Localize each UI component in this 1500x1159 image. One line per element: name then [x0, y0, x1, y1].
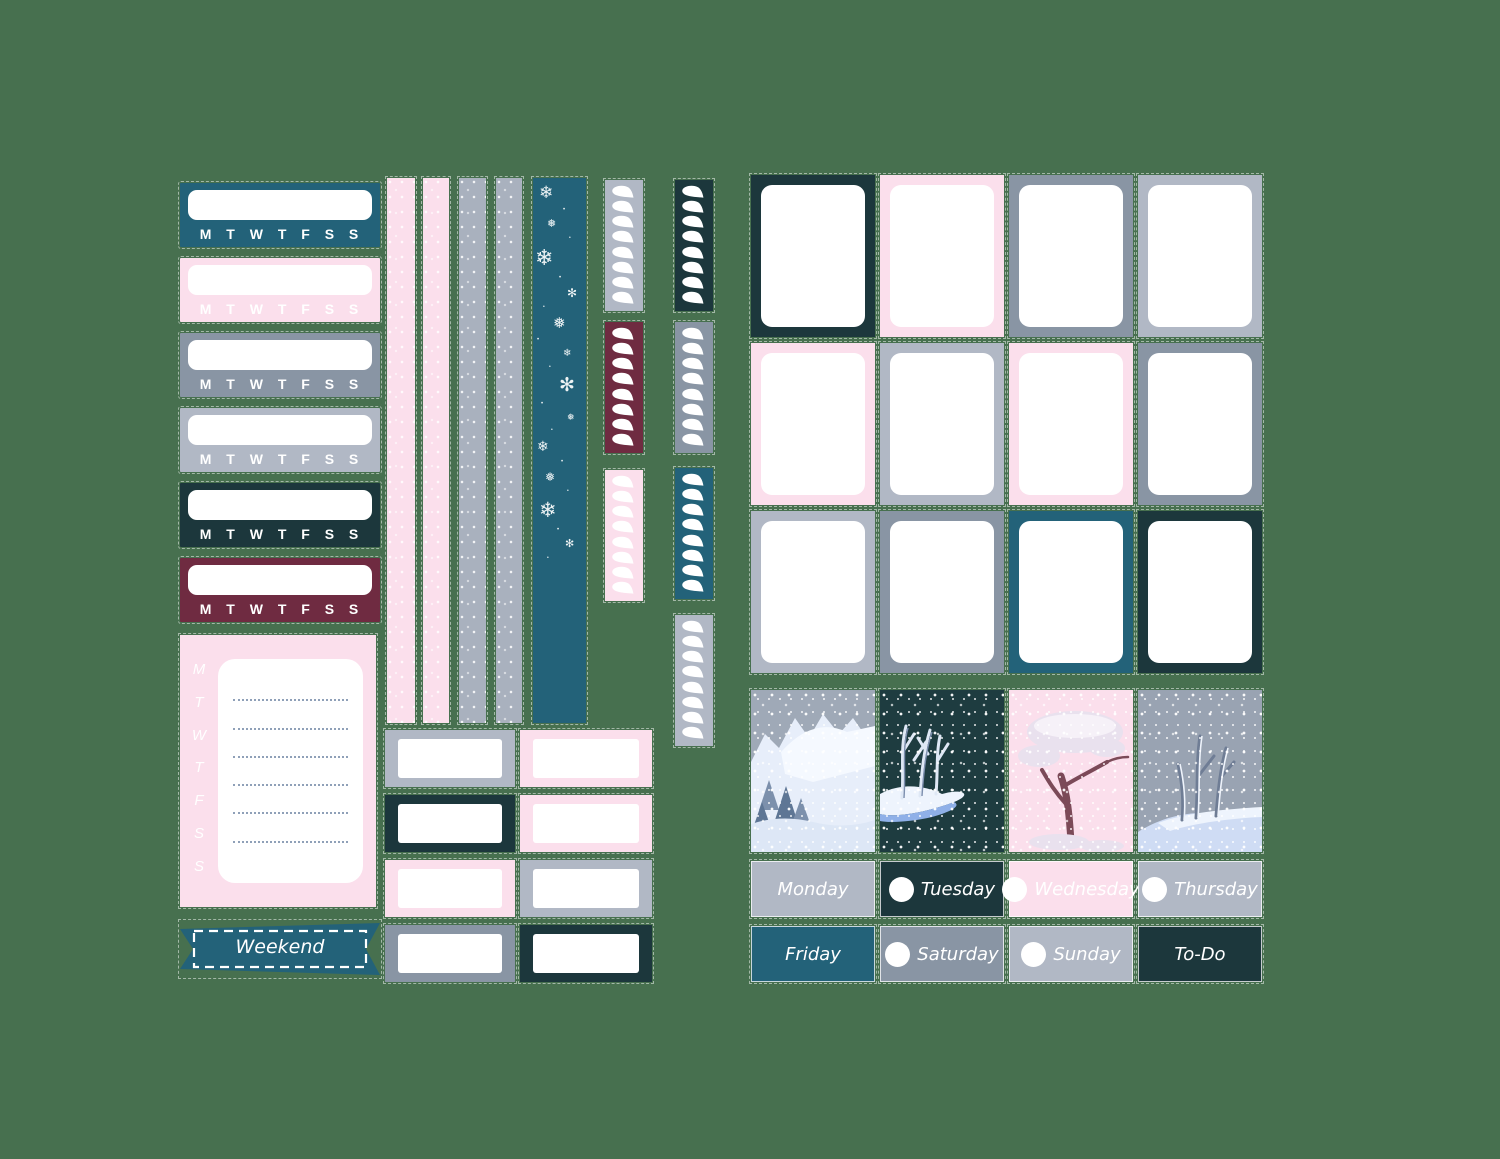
- half-box-sticker: [520, 795, 652, 852]
- half-box-sticker: [385, 925, 515, 982]
- notes-day-letter: T: [194, 759, 203, 776]
- teardrop-flag-icon: [681, 200, 708, 215]
- notes-day-letters: MTWTFSS: [180, 661, 218, 875]
- snowflake-icon: •: [543, 305, 545, 310]
- date-cover-writein: [188, 190, 372, 220]
- full-box-writein: [1148, 353, 1252, 495]
- date-cover-writein: [188, 415, 372, 445]
- half-box-sticker: [385, 795, 515, 852]
- teardrop-flag-icon: [681, 635, 708, 650]
- teardrop-flag-icon: [681, 665, 708, 680]
- checklist-flag-strip: [675, 180, 713, 311]
- date-cover-writein: [188, 565, 372, 595]
- washi-strip: [423, 178, 449, 723]
- teardrop-flag-icon: [681, 403, 708, 418]
- teardrop-flag-icon: [681, 246, 708, 261]
- teardrop-flag-icon: [681, 342, 708, 357]
- checklist-flag-strip: [675, 468, 713, 599]
- notes-day-letter: W: [192, 727, 206, 744]
- teardrop-flag-icon: [681, 681, 708, 696]
- teardrop-flag-icon: [681, 534, 708, 549]
- date-cover-writein: [188, 490, 372, 520]
- day-label-text: Sunday: [1053, 944, 1120, 965]
- teardrop-flag-icon: [611, 403, 638, 418]
- full-box-sticker: [1138, 175, 1262, 337]
- day-circle-icon: [885, 942, 910, 967]
- full-box-sticker: [1138, 511, 1262, 673]
- day-circle-icon: [1142, 877, 1167, 902]
- teardrop-flag-icon: [611, 246, 638, 261]
- date-cover-days-label: M T W T F S S: [180, 370, 380, 397]
- day-circle-icon: [1002, 877, 1027, 902]
- snowflake-icon: ❄: [539, 500, 557, 521]
- full-box-sticker: [1009, 343, 1133, 505]
- teardrop-flag-icon: [681, 564, 708, 579]
- teardrop-flag-icon: [681, 711, 708, 726]
- teardrop-flag-icon: [681, 291, 708, 306]
- teardrop-flag-icon: [611, 551, 638, 566]
- half-box-writein: [398, 934, 502, 973]
- full-box-sticker: [1009, 175, 1133, 337]
- small-box-grid: [385, 730, 652, 982]
- teardrop-flag-icon: [611, 357, 638, 372]
- teardrop-flag-icon: [611, 215, 638, 230]
- snowflake-icon: •: [549, 365, 551, 370]
- washi-strip: ❄•❅•❄•✻•❅•❄•✻•❅•❄•❅•❄•✻•: [533, 178, 586, 723]
- dotted-write-line: [233, 699, 348, 701]
- day-label-text: Wednesday: [1034, 879, 1139, 900]
- teardrop-flag-icon: [681, 388, 708, 403]
- weekly-notes-sticker: MTWTFSS: [180, 635, 376, 907]
- day-label-wednesday: Wednesday: [1009, 861, 1133, 917]
- day-label-to-do: To-Do: [1138, 926, 1262, 982]
- date-cover-days-label: M T W T F S S: [180, 595, 380, 622]
- full-box-writein: [890, 185, 994, 327]
- teardrop-flag-icon: [681, 433, 708, 448]
- teardrop-flag-icon: [681, 230, 708, 245]
- washi-strip: [496, 178, 522, 723]
- checklist-flag-strip: [675, 322, 713, 453]
- snowflake-icon: ❅: [545, 471, 555, 483]
- half-box-writein: [398, 739, 502, 778]
- teardrop-flag-icon: [681, 185, 708, 200]
- teardrop-flag-icon: [611, 291, 638, 306]
- full-box-sticker: [1138, 343, 1262, 505]
- snowflake-icon: ❄: [535, 247, 553, 269]
- snowflake-icon: ❅: [567, 413, 575, 422]
- snowflake-icon: ✻: [565, 539, 574, 550]
- notes-day-letter: T: [194, 694, 203, 711]
- sticker-sheet: M T W T F S SM T W T F S SM T W T F S SM…: [0, 0, 1500, 1159]
- scene-sticker-snowy-cliffs: [751, 690, 875, 852]
- teardrop-flag-icon: [611, 230, 638, 245]
- full-box-sticker: [1009, 511, 1133, 673]
- full-box-writein: [890, 521, 994, 663]
- day-circle-icon: [889, 877, 914, 902]
- snowflake-icon: ❄: [537, 439, 549, 453]
- half-box-writein: [533, 804, 639, 843]
- day-label-friday: Friday: [751, 926, 875, 982]
- half-box-writein: [533, 934, 639, 973]
- falling-snow-overlay: [1138, 690, 1262, 852]
- teardrop-flag-icon: [611, 536, 638, 551]
- snowflake-icon: ❅: [547, 219, 556, 230]
- notes-day-letter: S: [194, 825, 204, 842]
- full-box-sticker: [880, 175, 1004, 337]
- snowflake-icon: •: [551, 428, 553, 433]
- washi-strip: [459, 178, 486, 723]
- dotted-write-line: [233, 841, 348, 843]
- half-box-writein: [398, 804, 502, 843]
- teardrop-flag-icon: [611, 388, 638, 403]
- date-cover-sticker: M T W T F S S: [180, 408, 380, 472]
- checklist-flag-strip: [605, 180, 643, 311]
- teardrop-flag-icon: [681, 549, 708, 564]
- dotted-write-line: [233, 812, 348, 814]
- snowflake-icon: •: [561, 459, 563, 465]
- full-box-sticker: [751, 343, 875, 505]
- date-cover-sticker: M T W T F S S: [180, 483, 380, 547]
- checklist-flag-strip: [605, 322, 643, 453]
- teardrop-flag-icon: [611, 185, 638, 200]
- teardrop-flag-icon: [681, 215, 708, 230]
- teardrop-flag-icon: [681, 726, 708, 741]
- date-cover-column: M T W T F S SM T W T F S SM T W T F S SM…: [180, 183, 380, 622]
- teardrop-flag-icon: [611, 433, 638, 448]
- half-box-writein: [533, 869, 639, 908]
- teardrop-flag-icon: [681, 579, 708, 594]
- date-cover-days-label: M T W T F S S: [180, 445, 380, 472]
- half-box-sticker: [385, 860, 515, 917]
- snowflake-icon: ✻: [559, 376, 575, 395]
- teardrop-flag-icon: [611, 418, 638, 433]
- day-label-saturday: Saturday: [880, 926, 1004, 982]
- day-label-text: Monday: [777, 879, 848, 900]
- teardrop-flag-icon: [681, 518, 708, 533]
- checklist-flag-strip: [605, 470, 643, 601]
- teardrop-flag-icon: [611, 200, 638, 215]
- teardrop-flag-icon: [681, 418, 708, 433]
- date-cover-writein: [188, 340, 372, 370]
- teardrop-flag-icon: [611, 276, 638, 291]
- teardrop-flag-icon: [611, 261, 638, 276]
- checklist-flag-strip: [675, 615, 713, 746]
- dotted-write-line: [233, 756, 348, 758]
- teardrop-flag-icon: [681, 650, 708, 665]
- teardrop-flag-icon: [681, 261, 708, 276]
- full-box-sticker: [751, 175, 875, 337]
- full-box-writein: [1148, 185, 1252, 327]
- snowflake-icon: •: [567, 489, 569, 494]
- full-box-sticker: [751, 511, 875, 673]
- day-circle-icon: [1021, 942, 1046, 967]
- washi-strip: [387, 178, 415, 723]
- teardrop-flag-icon: [681, 327, 708, 342]
- full-box-writein: [761, 185, 865, 327]
- day-label-monday: Monday: [751, 861, 875, 917]
- notes-day-letter: F: [194, 792, 203, 809]
- day-label-text: To-Do: [1174, 944, 1225, 965]
- teardrop-flag-icon: [611, 475, 638, 490]
- snowflake-icon: ❅: [553, 316, 566, 331]
- teardrop-flag-icon: [681, 488, 708, 503]
- date-cover-sticker: M T W T F S S: [180, 258, 380, 322]
- half-box-sticker: [385, 730, 515, 787]
- day-label-grid: MondayTuesdayWednesdayThursdayFridaySatu…: [751, 861, 1262, 982]
- half-box-sticker: [520, 925, 652, 982]
- snowflake-icon: ✻: [567, 287, 577, 299]
- full-box-sticker: [880, 343, 1004, 505]
- full-box-writein: [1148, 521, 1252, 663]
- date-cover-sticker: M T W T F S S: [180, 333, 380, 397]
- day-label-text: Friday: [785, 944, 841, 965]
- weekend-banner-sticker: Weekend: [180, 921, 380, 977]
- day-label-text: Saturday: [917, 944, 998, 965]
- snowflake-icon: ❄: [539, 184, 553, 201]
- snowflake-icon: •: [547, 556, 549, 561]
- teardrop-flag-icon: [681, 620, 708, 635]
- day-label-sunday: Sunday: [1009, 926, 1133, 982]
- day-label-text: Thursday: [1174, 879, 1258, 900]
- full-box-writein: [1019, 185, 1123, 327]
- full-box-sticker: [880, 511, 1004, 673]
- day-label-text: Tuesday: [921, 879, 995, 900]
- dotted-write-line: [233, 728, 348, 730]
- weekend-banner-label: Weekend: [180, 936, 380, 958]
- snowflake-icon: •: [537, 337, 539, 343]
- snowflake-icon: •: [559, 275, 561, 281]
- scene-sticker-gray-snow-forest: [1138, 690, 1262, 852]
- falling-snow-overlay: [751, 690, 875, 852]
- dotted-write-line: [233, 784, 348, 786]
- notes-write-panel: [218, 659, 363, 883]
- snowflake-icon: ❄: [563, 349, 571, 359]
- teardrop-flag-icon: [611, 505, 638, 520]
- half-box-writein: [398, 869, 502, 908]
- full-box-writein: [761, 353, 865, 495]
- notes-day-letter: S: [194, 858, 204, 875]
- scene-sticker-night-snow-forest: [880, 690, 1004, 852]
- half-box-sticker: [520, 730, 652, 787]
- falling-snow-overlay: [1009, 690, 1133, 852]
- teardrop-flag-icon: [681, 372, 708, 387]
- half-box-writein: [533, 739, 639, 778]
- teardrop-flag-icon: [681, 276, 708, 291]
- date-cover-days-label: M T W T F S S: [180, 520, 380, 547]
- teardrop-flag-icon: [681, 696, 708, 711]
- full-box-grid: [751, 175, 1262, 673]
- full-box-writein: [761, 521, 865, 663]
- day-label-thursday: Thursday: [1138, 861, 1262, 917]
- date-cover-writein: [188, 265, 372, 295]
- scene-sticker-pink-snow-tree: [1009, 690, 1133, 852]
- date-cover-days-label: M T W T F S S: [180, 295, 380, 322]
- teardrop-flag-icon: [611, 342, 638, 357]
- snowflake-icon: •: [557, 527, 559, 533]
- snowflake-icon: •: [541, 401, 543, 407]
- full-box-writein: [890, 353, 994, 495]
- date-cover-days-label: M T W T F S S: [180, 220, 380, 247]
- date-cover-sticker: M T W T F S S: [180, 183, 380, 247]
- teardrop-flag-icon: [611, 581, 638, 596]
- scene-sticker-row: [751, 690, 1262, 852]
- teardrop-flag-icon: [611, 490, 638, 505]
- half-box-sticker: [520, 860, 652, 917]
- teardrop-flag-icon: [681, 473, 708, 488]
- notes-day-letter: M: [193, 661, 206, 678]
- date-cover-sticker: M T W T F S S: [180, 558, 380, 622]
- teardrop-flag-icon: [611, 372, 638, 387]
- falling-snow-overlay: [880, 690, 1004, 852]
- teardrop-flag-icon: [611, 566, 638, 581]
- teardrop-flag-icon: [611, 520, 638, 535]
- day-label-tuesday: Tuesday: [880, 861, 1004, 917]
- teardrop-flag-icon: [611, 327, 638, 342]
- teardrop-flag-icon: [681, 357, 708, 372]
- full-box-writein: [1019, 521, 1123, 663]
- snowflake-icon: •: [563, 207, 565, 213]
- teardrop-flag-icon: [681, 503, 708, 518]
- full-box-writein: [1019, 353, 1123, 495]
- snowflake-icon: •: [569, 236, 571, 241]
